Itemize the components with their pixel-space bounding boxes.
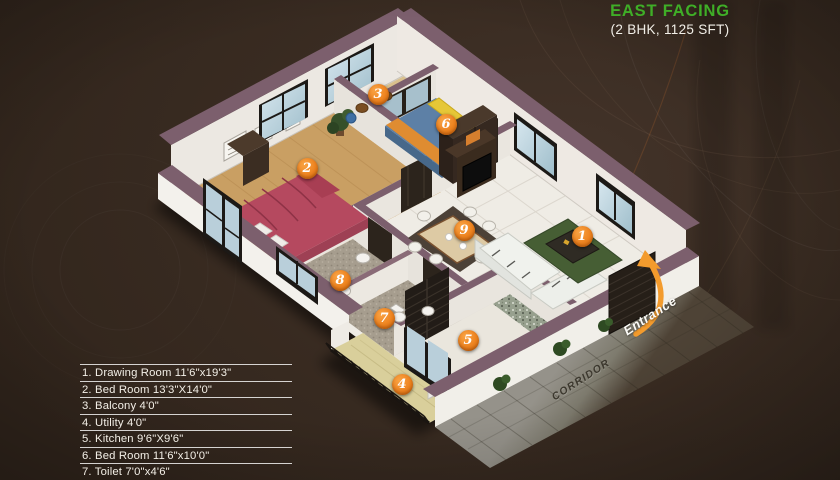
legend-item: 3. Balcony 4'0" [80,397,292,414]
legend-item: 6. Bed Room 11'6"x10'0" [80,447,292,464]
legend-item: 2. Bed Room 13'3"X14'0" [80,381,292,398]
page-subtitle: (2 BHK, 1125 SFT) [578,22,762,37]
room-marker-kitchen: 5 [458,330,479,351]
room-marker-dining: 9 [454,220,475,241]
room-marker-toilet-7: 7 [374,308,395,329]
room-marker-balcony: 3 [368,84,389,105]
legend-item: 5. Kitchen 9'6"X9'6" [80,430,292,447]
legend-item: 1. Drawing Room 11'6"x19'3" [80,364,292,381]
plan-header: EAST FACING (2 BHK, 1125 SFT) [578,2,762,37]
room-legend: 1. Drawing Room 11'6"x19'3" 2. Bed Room … [80,364,292,480]
page-title: EAST FACING [578,2,762,21]
room-marker-bedroom-6: 6 [436,114,457,135]
room-marker-toilet-8: 8 [330,270,351,291]
legend-item: 4. Utility 4'0" [80,414,292,431]
room-marker-bedroom-2: 2 [297,158,318,179]
room-marker-drawing-room: 1 [572,226,593,247]
legend-item: 7. Toilet 7'0"x4'6" [80,463,292,480]
globe-icon [346,113,356,123]
floorplan-page: EAST FACING (2 BHK, 1125 SFT) 1. Drawing… [0,0,840,480]
room-marker-utility: 4 [392,374,413,395]
stool-icon [356,104,368,113]
